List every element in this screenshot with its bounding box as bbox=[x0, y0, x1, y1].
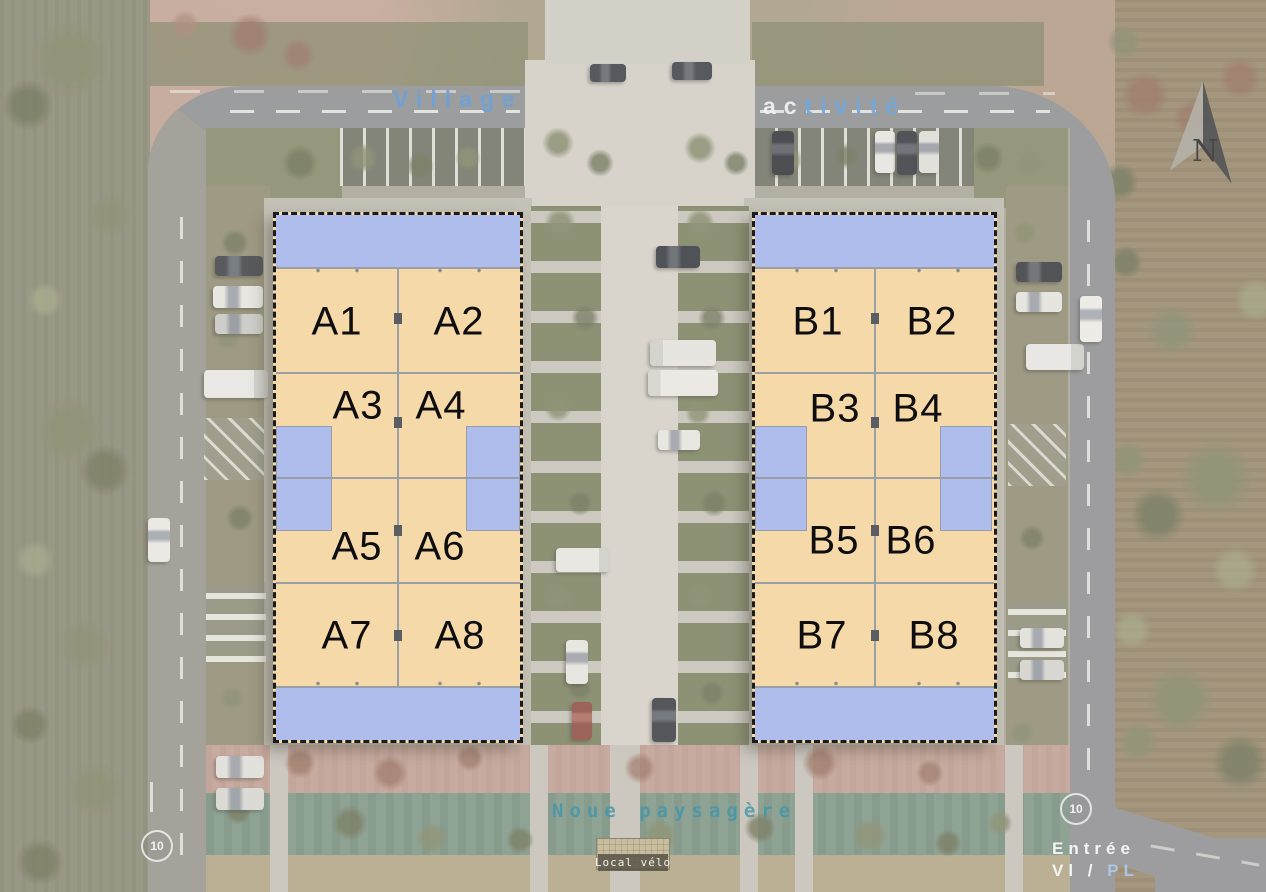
mezzanine-band-top bbox=[755, 215, 994, 269]
north-arrow-dark-half bbox=[1168, 78, 1238, 188]
label-entree: Entrée Vl / PL bbox=[1052, 838, 1139, 882]
car bbox=[919, 131, 939, 173]
car bbox=[215, 256, 263, 276]
door-mark bbox=[394, 313, 402, 324]
party-wall-horizontal bbox=[276, 372, 520, 374]
unit-b2[interactable]: B2 bbox=[907, 300, 958, 345]
unit-a3[interactable]: A3 bbox=[333, 384, 384, 429]
car bbox=[897, 131, 917, 175]
title-activite: activité bbox=[763, 93, 906, 120]
mezzanine-band-bottom bbox=[755, 686, 994, 740]
facade-dots bbox=[755, 681, 994, 686]
footpath bbox=[795, 745, 813, 892]
label-local-velo: Local vélo bbox=[598, 854, 668, 871]
door-mark bbox=[394, 417, 402, 428]
road-centerline bbox=[180, 215, 183, 855]
unit-b8[interactable]: B8 bbox=[909, 614, 960, 659]
door-mark bbox=[394, 525, 402, 536]
car bbox=[1020, 660, 1064, 680]
door-mark bbox=[871, 630, 879, 641]
facade-dots bbox=[755, 268, 994, 273]
door-mark bbox=[871, 417, 879, 428]
mezzanine-block bbox=[466, 478, 520, 531]
north-arrow: N bbox=[1168, 78, 1238, 188]
party-wall-horizontal bbox=[755, 372, 994, 374]
road-stop-dash bbox=[150, 782, 153, 812]
road-edge-dashes bbox=[915, 92, 1055, 95]
unit-a5[interactable]: A5 bbox=[332, 525, 383, 570]
truck bbox=[204, 370, 268, 398]
unit-b4[interactable]: B4 bbox=[893, 387, 944, 432]
unit-b6[interactable]: B6 bbox=[886, 519, 937, 564]
title-activite-white: ac bbox=[763, 93, 805, 119]
green-strip-top-left bbox=[150, 22, 528, 86]
car bbox=[572, 702, 592, 740]
truck bbox=[648, 370, 718, 396]
site-plan: A1 A2 A3 A4 A5 A6 A7 A8 B1 B2 B3 B4 B5 B… bbox=[0, 0, 1266, 892]
unit-a4[interactable]: A4 bbox=[416, 384, 467, 429]
unit-a2[interactable]: A2 bbox=[434, 300, 485, 345]
road-hatch-marking bbox=[1008, 424, 1066, 486]
car bbox=[590, 64, 626, 82]
mezzanine-block bbox=[755, 426, 807, 478]
car bbox=[213, 286, 263, 308]
unit-b1[interactable]: B1 bbox=[793, 300, 844, 345]
road-hatch-marking bbox=[204, 418, 264, 480]
parking-stripes-left bbox=[206, 582, 266, 662]
car bbox=[1080, 296, 1102, 342]
car bbox=[652, 698, 676, 742]
unit-b3[interactable]: B3 bbox=[810, 387, 861, 432]
speed-roundel-10: 10 bbox=[141, 830, 173, 862]
door-mark bbox=[871, 525, 879, 536]
footpath bbox=[270, 745, 288, 892]
speed-roundel-10: 10 bbox=[1060, 793, 1092, 825]
label-noue-paysagere: Noue paysagère bbox=[552, 800, 796, 822]
footpath bbox=[530, 745, 548, 892]
car bbox=[216, 756, 264, 778]
car bbox=[1016, 262, 1062, 282]
door-mark bbox=[394, 630, 402, 641]
van bbox=[656, 246, 700, 268]
green-strip-top-right bbox=[752, 22, 1044, 86]
car bbox=[1020, 628, 1064, 648]
mezzanine-block bbox=[755, 478, 807, 531]
door-mark bbox=[871, 313, 879, 324]
party-wall-horizontal bbox=[276, 582, 520, 584]
unit-a1[interactable]: A1 bbox=[312, 300, 363, 345]
facade-dots bbox=[276, 681, 520, 686]
car bbox=[658, 430, 700, 450]
car bbox=[215, 314, 263, 334]
unit-b7[interactable]: B7 bbox=[797, 614, 848, 659]
mezzanine-block bbox=[940, 426, 992, 478]
central-driveway bbox=[601, 206, 678, 762]
car bbox=[148, 518, 170, 562]
entrance-plaza bbox=[525, 60, 755, 206]
hedge-center-right bbox=[678, 206, 749, 761]
north-label: N bbox=[1192, 134, 1218, 169]
car bbox=[672, 62, 712, 80]
north-driveway bbox=[545, 0, 750, 64]
car bbox=[216, 788, 264, 810]
mezzanine-block bbox=[466, 426, 520, 478]
title-village: Village bbox=[393, 86, 523, 113]
unit-b5[interactable]: B5 bbox=[809, 519, 860, 564]
building-a: A1 A2 A3 A4 A5 A6 A7 A8 bbox=[273, 212, 523, 743]
mezzanine-block bbox=[276, 478, 332, 531]
mezzanine-band-bottom bbox=[276, 686, 520, 740]
unit-a6[interactable]: A6 bbox=[415, 525, 466, 570]
party-wall-horizontal bbox=[755, 582, 994, 584]
car bbox=[772, 131, 794, 175]
entree-line2: Vl / PL bbox=[1052, 860, 1139, 882]
car bbox=[566, 640, 588, 684]
mezzanine-block bbox=[940, 478, 992, 531]
field-left bbox=[0, 0, 150, 892]
mezzanine-block bbox=[276, 426, 332, 478]
unit-a7[interactable]: A7 bbox=[322, 614, 373, 659]
title-activite-blue: tivité bbox=[805, 93, 907, 119]
building-b: B1 B2 B3 B4 B5 B6 B7 B8 bbox=[752, 212, 997, 743]
entree-line1: Entrée bbox=[1052, 838, 1139, 860]
mezzanine-band-top bbox=[276, 215, 520, 269]
footpath bbox=[1005, 745, 1023, 892]
parking-top-left bbox=[340, 128, 525, 186]
car bbox=[875, 131, 895, 173]
car bbox=[1016, 292, 1062, 312]
truck bbox=[556, 548, 610, 572]
facade-dots bbox=[276, 268, 520, 273]
truck bbox=[1026, 344, 1084, 370]
unit-a8[interactable]: A8 bbox=[435, 614, 486, 659]
truck bbox=[650, 340, 716, 366]
